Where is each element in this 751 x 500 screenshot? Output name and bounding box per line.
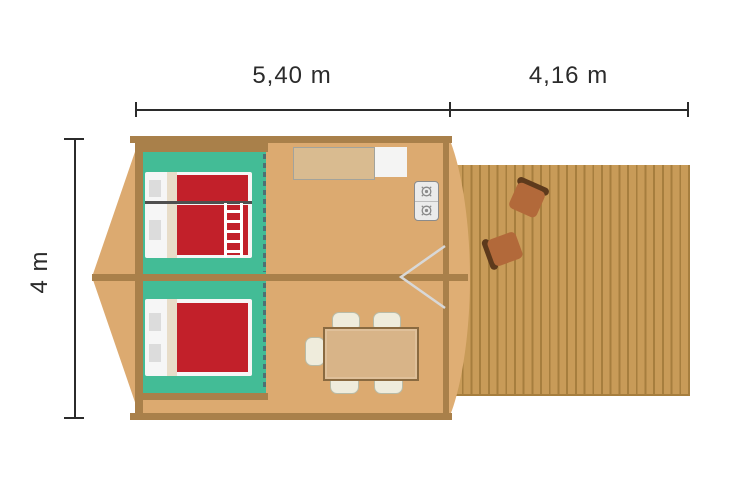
stove-burner-icon	[415, 182, 438, 201]
door-swing-icon	[395, 242, 447, 312]
depth-dimension-line	[74, 138, 76, 419]
double-bed-icon	[145, 299, 252, 376]
terrace-deck	[455, 165, 690, 396]
dining-table-icon	[323, 327, 419, 381]
tent-floor-plan: 5,40 m 4,16 m 4 m	[0, 0, 751, 500]
tent-wall-bottom	[130, 413, 452, 420]
curtain-partition-icon	[263, 283, 266, 391]
pillow-icon	[149, 344, 161, 362]
terrace-width-label: 4,16 m	[449, 62, 688, 90]
dimension-cap	[64, 417, 84, 419]
tent-width-dimension-line	[135, 109, 449, 111]
dimension-tick	[449, 102, 451, 117]
bunk-bed-icon	[145, 172, 252, 258]
terrace-width-dimension-line	[449, 109, 688, 111]
stove-icon	[414, 181, 439, 221]
blanket-double-bed	[177, 303, 248, 372]
dining-chair-icon	[305, 337, 325, 366]
blanket-top-bunk	[177, 175, 248, 202]
dimension-cap	[64, 138, 84, 140]
bedroom-wall-bottom	[135, 393, 268, 400]
kitchen-counter-icon	[293, 147, 375, 180]
depth-label: 4 m	[26, 242, 54, 302]
sheet-fold	[167, 172, 177, 258]
ladder-icon	[224, 203, 243, 257]
pillow-icon	[149, 313, 161, 331]
dimension-tick	[135, 102, 137, 117]
pillow-icon	[149, 220, 161, 240]
pillow-icon	[149, 180, 161, 197]
stove-burner-icon	[415, 201, 438, 221]
bedroom-wall-top	[139, 143, 268, 152]
tent-width-label: 5,40 m	[135, 62, 449, 90]
tent-wall-top	[130, 136, 452, 143]
sheet-fold	[167, 299, 177, 376]
dimension-tick	[687, 102, 689, 117]
curtain-partition-icon	[263, 154, 266, 272]
sink-icon	[375, 147, 407, 177]
